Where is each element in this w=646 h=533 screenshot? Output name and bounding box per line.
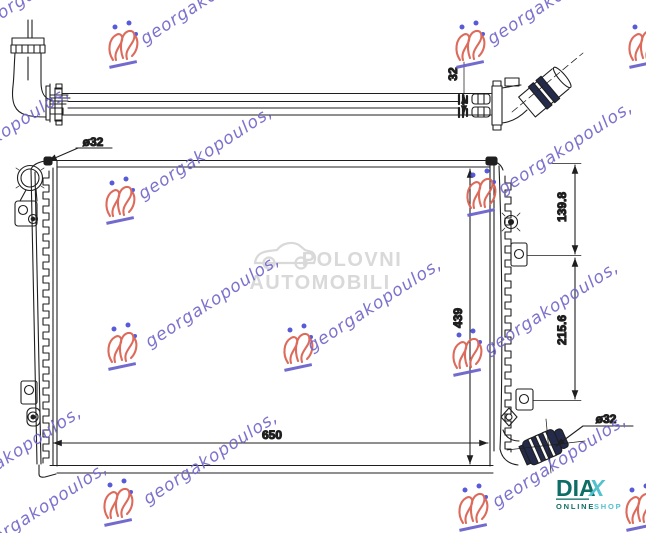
dim-upper-offset-label: 139.8	[555, 192, 569, 222]
watermark-logo-icon	[453, 329, 482, 377]
dim-core-height-label: 439	[451, 308, 465, 328]
dim-lower-offset-label: 215.6	[555, 315, 569, 345]
watermark-script: georgakopoulos,	[0, 458, 112, 533]
diax-logo-underline	[556, 499, 589, 500]
watermark-logo-icon	[456, 21, 485, 69]
diax-logo-accent: X	[587, 475, 606, 501]
watermark-logo-icon	[459, 484, 488, 532]
dim-pipe-thickness-label: 32	[446, 67, 460, 81]
outlet-connector	[492, 53, 583, 130]
right-upper-bracket	[511, 243, 527, 266]
right-diamond-mount	[501, 408, 517, 426]
right-tank	[486, 157, 533, 465]
watermark-script: georgakopoulos,	[0, 82, 74, 184]
right-lower-bracket	[516, 389, 533, 410]
left-lower-bracket	[21, 381, 37, 404]
top-right-clip	[486, 157, 497, 165]
watermark-logo-icon	[106, 177, 135, 225]
radiator-front-view	[15, 157, 585, 477]
diax-tagline-accent: SHOP	[594, 502, 622, 511]
watermark-script: georgakopoulos,	[0, 0, 116, 36]
watermark-logo-icon	[629, 21, 646, 69]
watermark-script: georgakopoulos,	[137, 0, 279, 49]
dimension-core-height: 439	[451, 169, 470, 464]
label-inlet-diameter: ø32	[48, 135, 112, 161]
inlet-diameter-label: ø32	[83, 135, 104, 149]
watermark-logo-icon	[104, 479, 133, 527]
center-watermark-line1: POLOVNI	[302, 249, 403, 271]
radiator-diagram-page: POLOVNI AUTOMOBILI	[0, 0, 646, 533]
watermark-script: georgakopoulos,	[140, 407, 282, 509]
watermark-logo-icon	[109, 21, 138, 69]
watermark-script: georgakopoulos,	[495, 97, 637, 199]
radiator-technical-drawing: POLOVNI AUTOMOBILI	[0, 0, 646, 533]
dimension-pipe-thickness: 32	[446, 62, 464, 114]
watermark-script: georgakopoulos,	[142, 250, 284, 352]
diax-logo: DIA X ONLINE SHOP	[556, 475, 622, 511]
watermark-script: georgakopoulos,	[484, 0, 626, 49]
watermark-logo-icon	[108, 323, 137, 371]
left-foot	[39, 465, 56, 477]
watermark-logo-icon	[626, 484, 646, 532]
diax-tagline-primary: ONLINE	[556, 502, 595, 511]
angled-pipe	[518, 64, 575, 118]
watermark-script: georgakopoulos,	[135, 102, 277, 204]
watermark-logo-icon	[467, 169, 496, 217]
dimension-lower-bracket-offset: 215.6	[533, 258, 581, 401]
